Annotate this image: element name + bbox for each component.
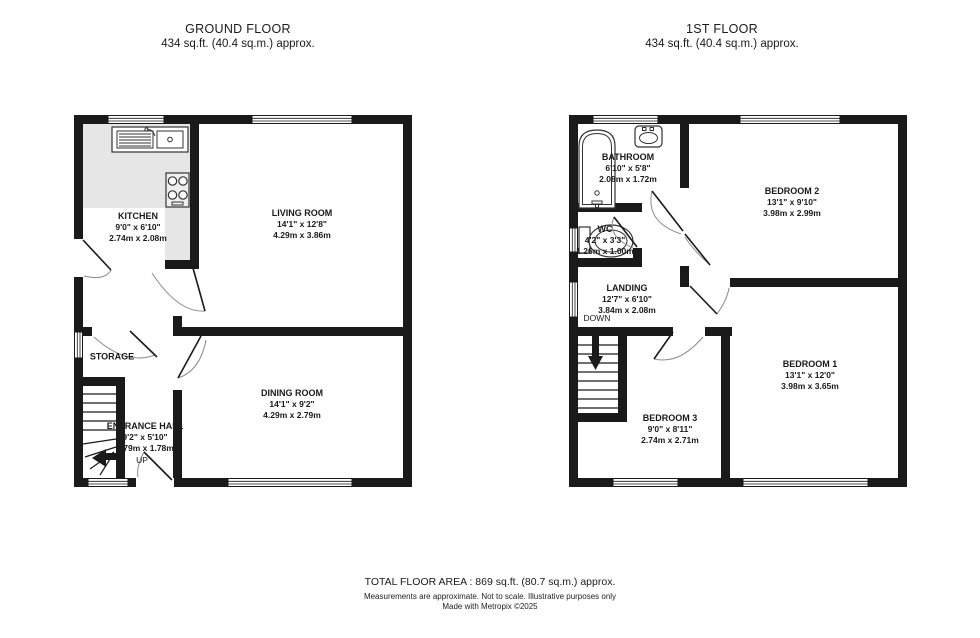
ground-floor-plan: KITCHEN 9'0" x 6'10" 2.74m x 2.08m LIVIN… [60, 100, 440, 500]
bedroom-3-label: BEDROOM 3 9'0" x 8'11" 2.74m x 2.71m [641, 413, 699, 446]
bedroom-2-label: BEDROOM 2 13'1" x 9'10" 3.98m x 2.99m [763, 186, 821, 219]
sink-icon [112, 127, 188, 152]
entrance-hall-label: ENTRANCE HALL 9'2" x 5'10" 2.79m x 1.78m [107, 421, 184, 454]
credit: Made with Metropix ©2025 [290, 602, 690, 611]
storage-label: STORAGE [90, 351, 134, 362]
bathroom-label: BATHROOM 6'10" x 5'8" 2.08m x 1.72m [599, 152, 657, 185]
kitchen-label: KITCHEN 9'0" x 6'10" 2.74m x 2.08m [109, 211, 167, 244]
ground-floor-header: GROUND FLOOR 434 sq.ft. (40.4 sq.m.) app… [88, 22, 388, 50]
first-floor-plan: BATHROOM 6'10" x 5'8" 2.08m x 1.72m WC 4… [555, 100, 935, 500]
ground-floor-area: 434 sq.ft. (40.4 sq.m.) approx. [88, 38, 388, 50]
wash-basin-icon [635, 126, 662, 147]
hob-icon [166, 173, 189, 207]
footer: TOTAL FLOOR AREA : 869 sq.ft. (80.7 sq.m… [290, 576, 690, 611]
up-label: UP [136, 455, 148, 465]
bedroom-1-label: BEDROOM 1 13'1" x 12'0" 3.98m x 3.65m [781, 359, 839, 392]
total-floor-area: TOTAL FLOOR AREA : 869 sq.ft. (80.7 sq.m… [290, 576, 690, 588]
ground-floor-title: GROUND FLOOR [88, 22, 388, 36]
down-label: DOWN [584, 313, 611, 323]
down-arrow-icon [588, 331, 603, 370]
wc-label: WC 4'2" x 3'3" 1.26m x 1.00m [576, 224, 634, 257]
disclaimer: Measurements are approximate. Not to sca… [290, 592, 690, 601]
living-room-label: LIVING ROOM 14'1" x 12'8" 4.29m x 3.86m [272, 208, 333, 241]
first-floor-header: 1ST FLOOR 434 sq.ft. (40.4 sq.m.) approx… [572, 22, 872, 50]
first-floor-title: 1ST FLOOR [572, 22, 872, 36]
first-floor-area: 434 sq.ft. (40.4 sq.m.) approx. [572, 38, 872, 50]
floorplan-canvas: GROUND FLOOR 434 sq.ft. (40.4 sq.m.) app… [0, 0, 980, 638]
landing-label: LANDING 12'7" x 6'10" 3.84m x 2.08m [598, 283, 656, 316]
dining-room-label: DINING ROOM 14'1" x 9'2" 4.29m x 2.79m [261, 388, 323, 421]
